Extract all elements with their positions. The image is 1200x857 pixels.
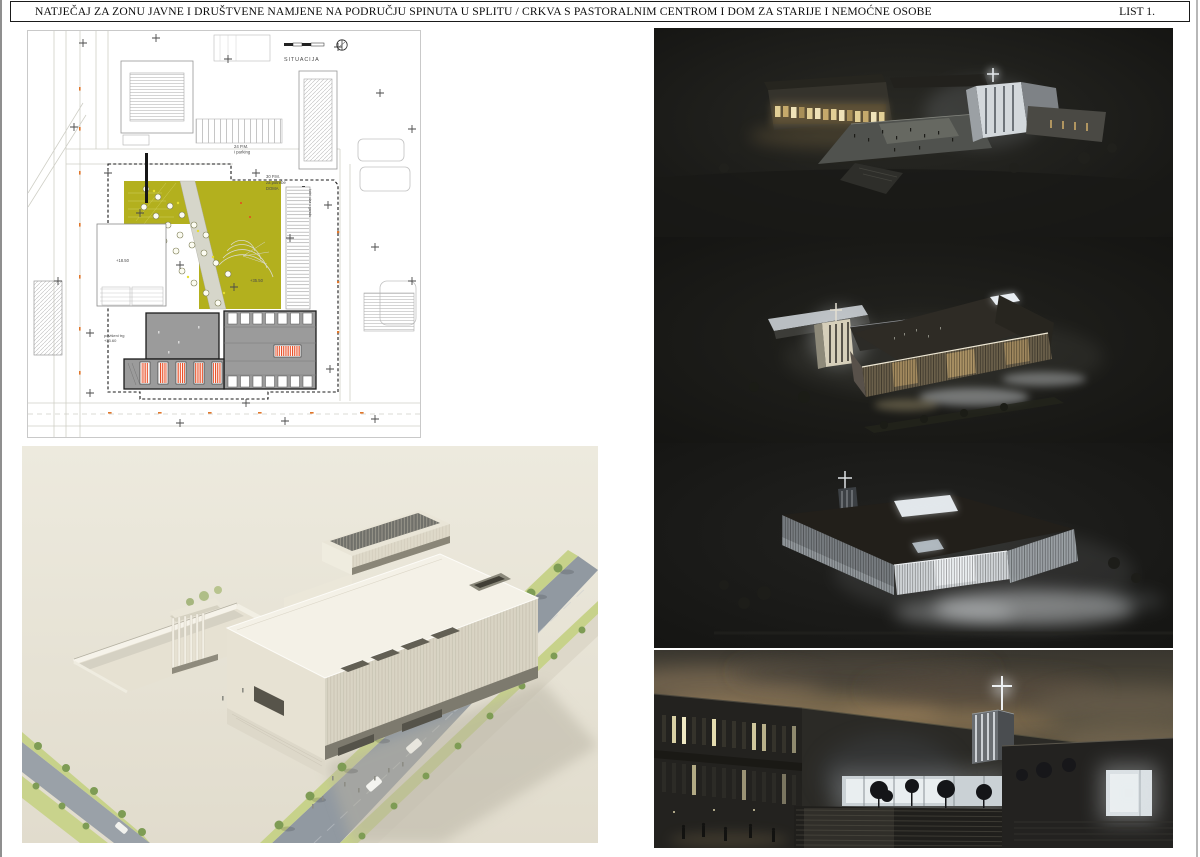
competition-board: NATJEČAJ ZA ZONU JAVNE I DRUŠTVENE NAMJE… (0, 0, 1200, 857)
east-parking (286, 187, 310, 309)
daytime-aerial-render (22, 446, 598, 843)
left-wing (654, 694, 802, 848)
scan-edge-right (1196, 0, 1198, 857)
night-aerial-render-3 (654, 443, 1173, 648)
plaza-label: +33.60 (104, 338, 117, 343)
right-wing (1002, 738, 1173, 848)
sheet-title: NATJEČAJ ZA ZONU JAVNE I DRUŠTVENE NAMJE… (35, 5, 932, 18)
elevation-label: +35.50 (250, 278, 264, 283)
elevation-label: +18.50 (116, 258, 130, 263)
night-aerial-render-1 (654, 28, 1173, 237)
dusk-entrance-render (654, 650, 1173, 848)
site-plan-panel: SITUACIJA 24 P.M. i parking 30 P.M. za p… (27, 30, 421, 438)
section-marker (145, 153, 148, 203)
parking-label: i parking (234, 150, 251, 155)
scan-edge-left (0, 0, 2, 857)
sheet-header: NATJEČAJ ZA ZONU JAVNE I DRUŠTVENE NAMJE… (10, 1, 1190, 22)
site-plan-drawing: SITUACIJA 24 P.M. i parking 30 P.M. za p… (28, 31, 420, 437)
night-aerial-render-2 (654, 237, 1173, 443)
scale-bar (284, 43, 324, 46)
north-parking (196, 119, 282, 143)
parking-label: 24 P.M. (234, 144, 248, 149)
garage-ramp-label: kolni ulaz u garažu (308, 189, 312, 217)
sheet-number: LIST 1. (1119, 5, 1155, 18)
dom-parking-label: za potrebe (266, 180, 286, 185)
raised-plaza (97, 224, 166, 306)
dom-parking-label: DOMA (266, 186, 279, 191)
site-plan-caption: SITUACIJA (284, 57, 320, 63)
dom-parking-label: 30 P.M. (266, 174, 280, 179)
